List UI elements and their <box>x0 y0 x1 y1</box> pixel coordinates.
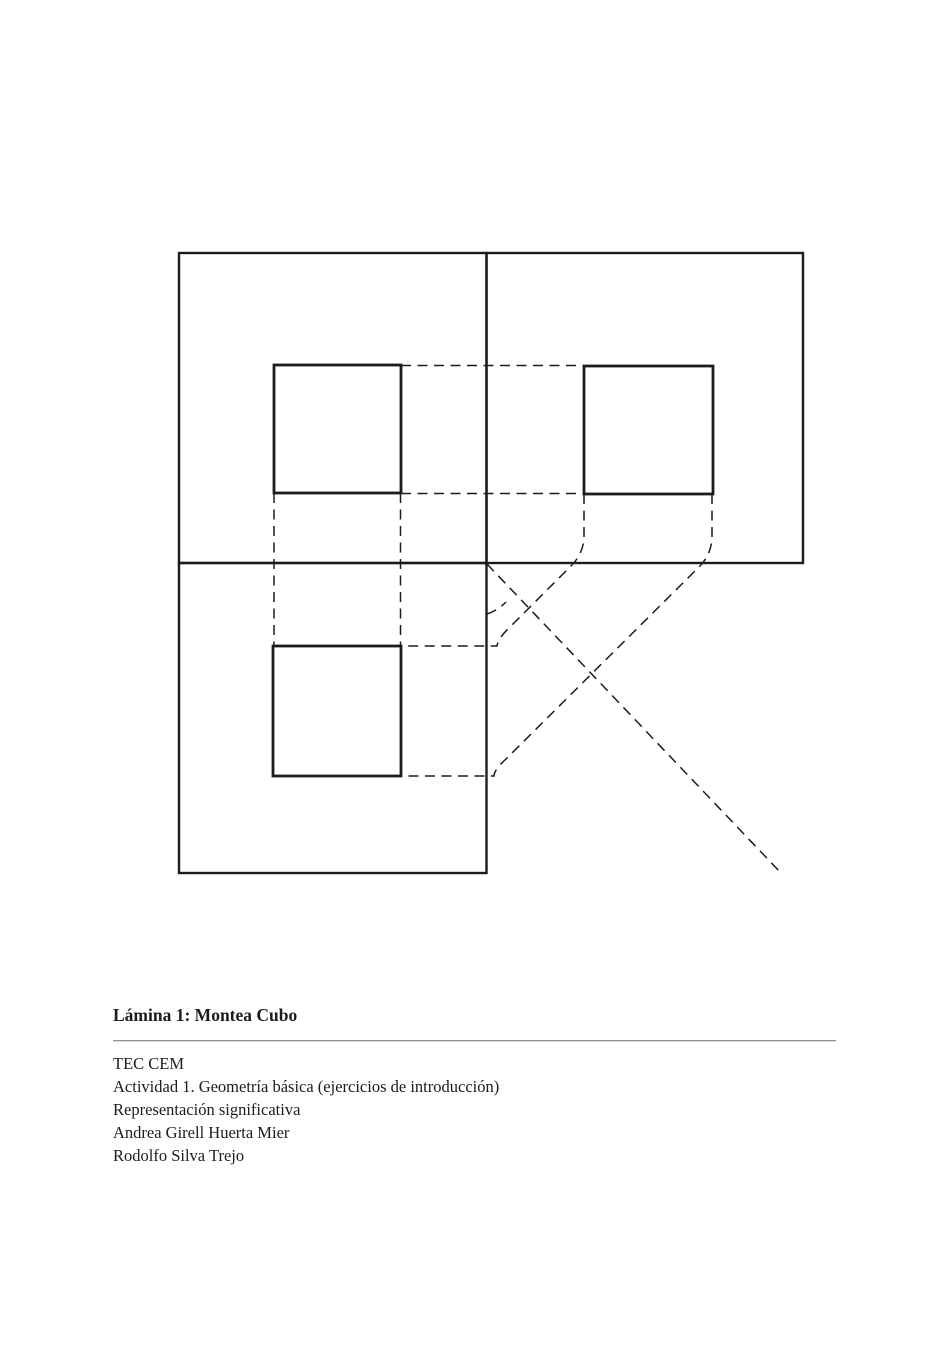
quadrant-frame-bottom-left <box>179 563 487 873</box>
credit-line-activity: Actividad 1. Geometría básica (ejercicio… <box>113 1075 853 1098</box>
credit-line-institution: TEC CEM <box>113 1052 853 1075</box>
credit-line-representation: Representación significativa <box>113 1098 853 1121</box>
caption-divider-rule <box>113 1040 836 1042</box>
figure-caption: Lámina 1: Montea Cubo TEC CEM Actividad … <box>113 1005 853 1167</box>
cube-view-square-bottom-left <box>273 646 401 776</box>
transfer-arc-stub <box>487 602 506 614</box>
figure-caption-title: Lámina 1: Montea Cubo <box>113 1005 853 1026</box>
cube-view-square-top-left <box>274 365 401 493</box>
montea-cubo-drawing <box>0 0 952 952</box>
miter-diagonal-line <box>487 564 781 873</box>
cube-view-square-top-right <box>584 366 713 494</box>
quadrant-frame-top-left <box>179 253 487 563</box>
depth-transfer-line-far <box>401 494 712 776</box>
credit-line-author-2: Rodolfo Silva Trejo <box>113 1144 853 1167</box>
document-page: Lámina 1: Montea Cubo TEC CEM Actividad … <box>0 0 952 1347</box>
quadrant-frame-top-right <box>487 253 804 563</box>
credit-line-author-1: Andrea Girell Huerta Mier <box>113 1121 853 1144</box>
